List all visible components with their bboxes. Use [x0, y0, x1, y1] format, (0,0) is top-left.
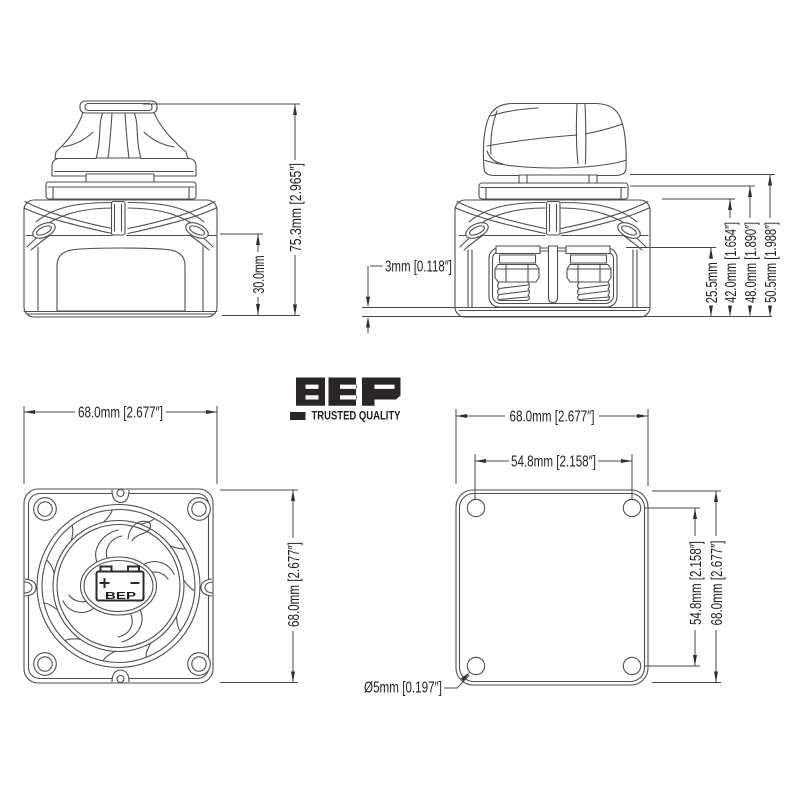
svg-text:75.3mm [2.965″]: 75.3mm [2.965″] — [288, 163, 305, 252]
svg-text:Ø5mm [0.197″]: Ø5mm [0.197″] — [364, 680, 442, 697]
svg-text:50.5mm [1.988″]: 50.5mm [1.988″] — [763, 222, 780, 303]
svg-text:48.0mm [1.890″]: 48.0mm [1.890″] — [743, 222, 760, 303]
svg-text:68.0mm [2.677″]: 68.0mm [2.677″] — [286, 542, 303, 627]
svg-text:3mm [0.118″]: 3mm [0.118″] — [385, 259, 452, 276]
svg-text:25.5mm: 25.5mm — [704, 262, 721, 303]
svg-text:54.8mm [2.158″]: 54.8mm [2.158″] — [511, 454, 596, 471]
svg-text:68.0mm [2.677″]: 68.0mm [2.677″] — [78, 405, 163, 422]
svg-text:BEP: BEP — [105, 591, 136, 602]
svg-text:TRUSTED QUALITY: TRUSTED QUALITY — [312, 411, 401, 423]
svg-text:42.0mm [1.654″]: 42.0mm [1.654″] — [723, 222, 740, 303]
svg-text:54.8mm [2.158″]: 54.8mm [2.158″] — [688, 541, 705, 625]
svg-text:68.0mm [2.677″]: 68.0mm [2.677″] — [510, 409, 595, 426]
svg-text:68.0mm [2.677″]: 68.0mm [2.677″] — [709, 541, 726, 626]
svg-text:30.0mm: 30.0mm — [251, 256, 268, 294]
